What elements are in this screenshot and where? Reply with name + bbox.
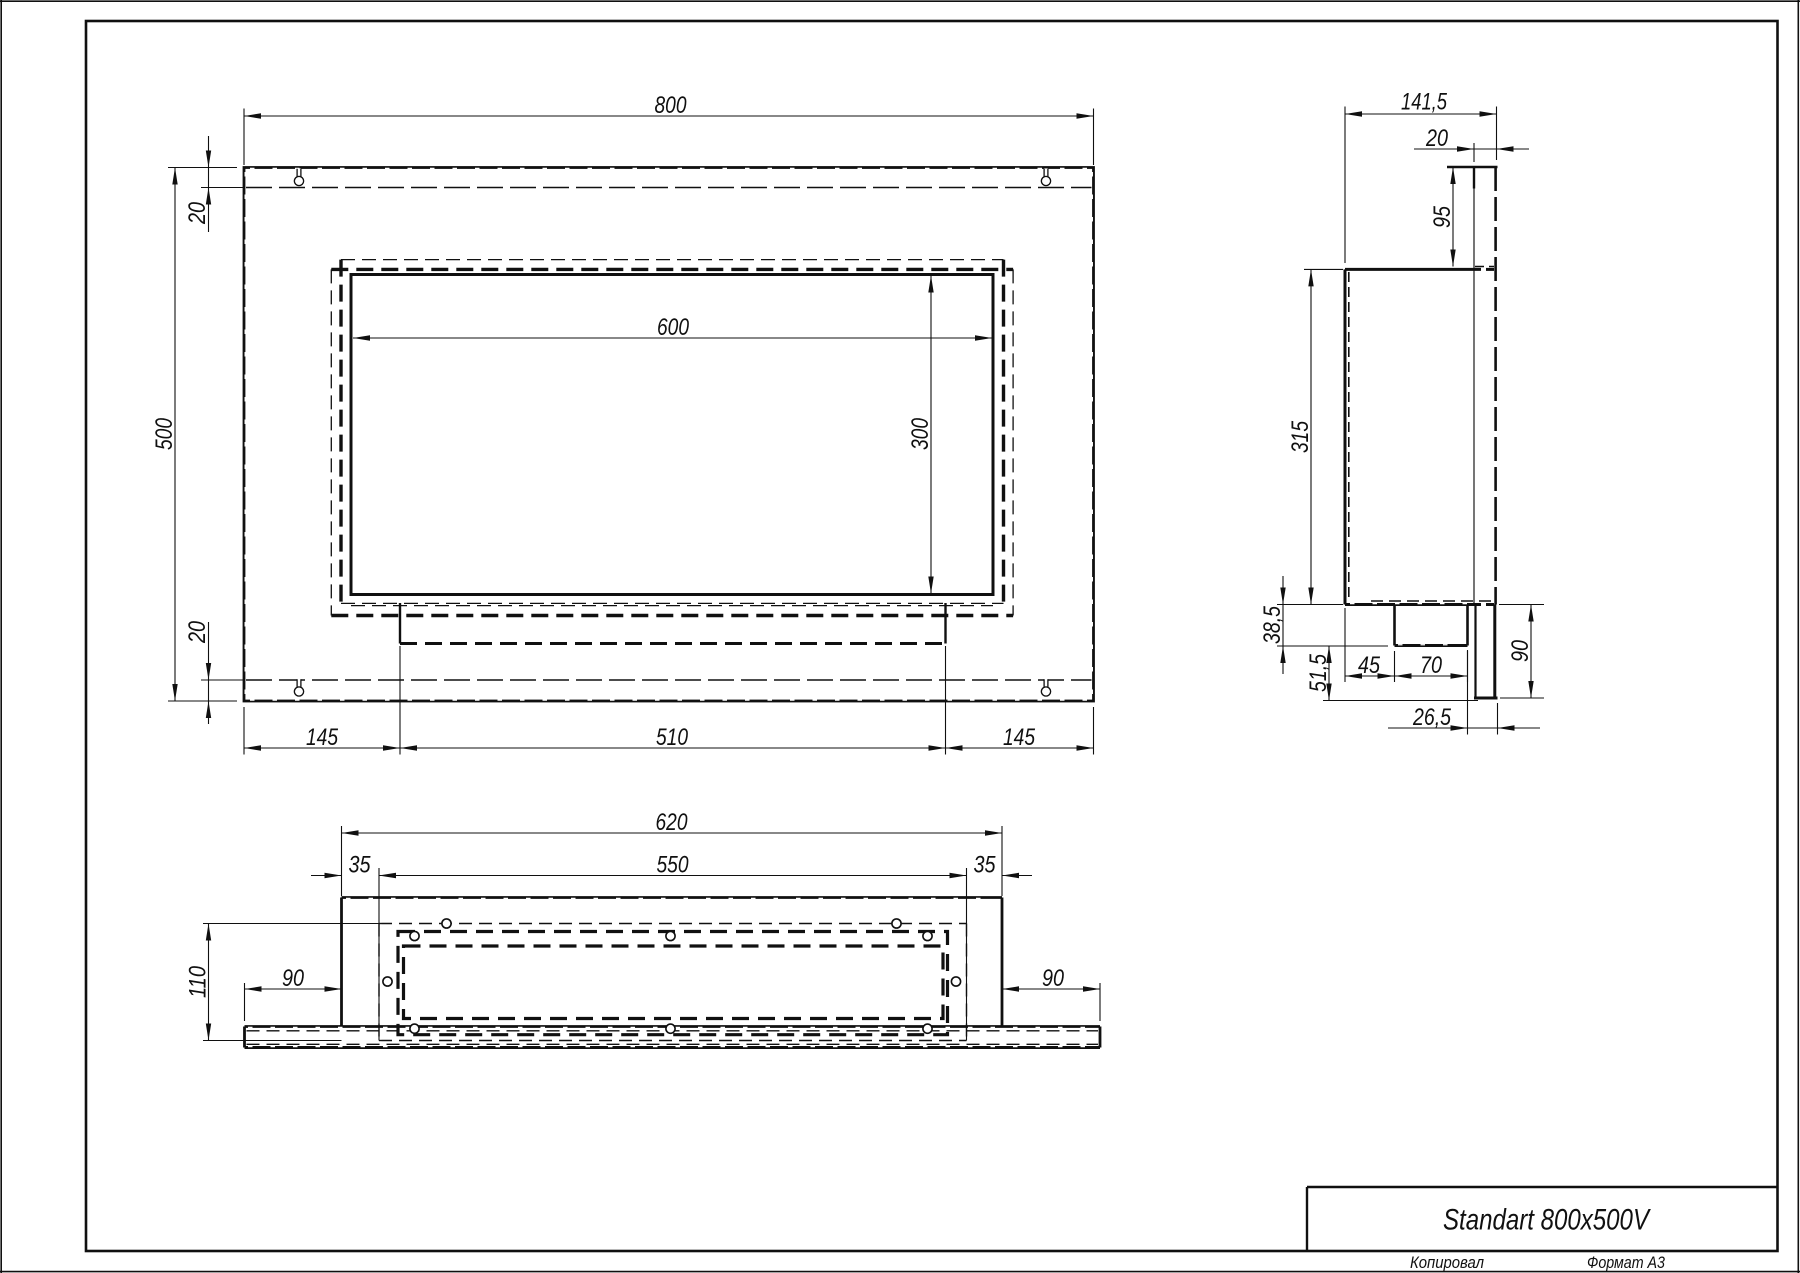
svg-text:141,5: 141,5 [1401, 89, 1447, 116]
svg-text:500: 500 [151, 417, 178, 450]
svg-text:35: 35 [349, 852, 372, 879]
svg-text:20: 20 [1425, 125, 1448, 152]
svg-text:600: 600 [657, 314, 690, 341]
svg-text:300: 300 [907, 417, 934, 450]
svg-text:90: 90 [1507, 639, 1534, 662]
svg-text:145: 145 [306, 724, 339, 751]
svg-text:90: 90 [1042, 965, 1065, 992]
svg-text:90: 90 [282, 965, 305, 992]
svg-text:35: 35 [974, 852, 997, 879]
svg-text:Копировал: Копировал [1410, 1253, 1484, 1272]
svg-text:20: 20 [184, 201, 211, 224]
svg-text:510: 510 [656, 724, 689, 751]
svg-text:51,5: 51,5 [1305, 653, 1332, 692]
svg-text:Формат А3: Формат А3 [1587, 1253, 1665, 1272]
svg-text:20: 20 [184, 620, 211, 643]
svg-text:620: 620 [656, 809, 689, 836]
svg-text:70: 70 [1420, 652, 1443, 679]
svg-text:145: 145 [1003, 724, 1036, 751]
svg-text:38,5: 38,5 [1259, 605, 1286, 644]
svg-text:800: 800 [655, 92, 688, 119]
svg-text:550: 550 [657, 852, 690, 879]
svg-text:95: 95 [1429, 205, 1456, 228]
svg-text:45: 45 [1358, 652, 1381, 679]
svg-text:Standart 800x500V: Standart 800x500V [1443, 1204, 1651, 1237]
svg-text:110: 110 [185, 965, 212, 998]
svg-text:26,5: 26,5 [1412, 704, 1451, 731]
svg-text:315: 315 [1287, 420, 1314, 453]
